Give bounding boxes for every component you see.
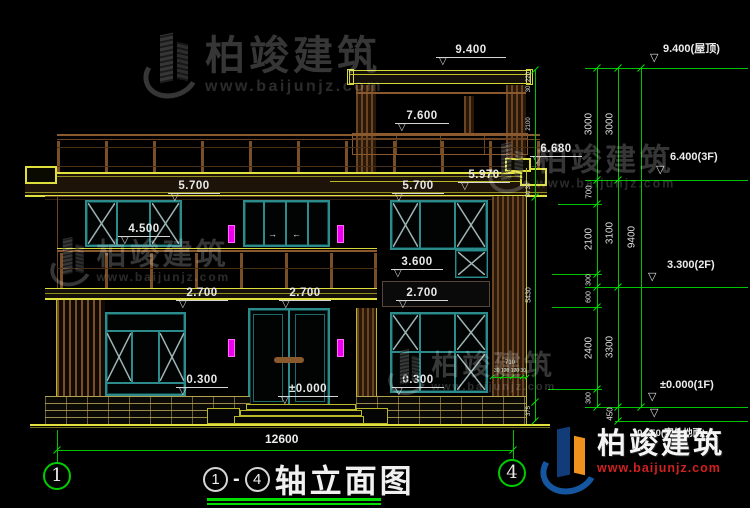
terrace-rail-panel-line: [57, 147, 540, 148]
penthouse-beam: [356, 92, 526, 94]
level-mark: 2.700 ▽: [396, 287, 448, 301]
dim-value: 375: [526, 406, 532, 416]
dim-value: 600: [586, 291, 593, 303]
slide-direction-arrow: ←: [292, 230, 301, 239]
window-rail: [107, 382, 184, 384]
wall-lamp: [337, 339, 344, 357]
level-mark: 2.700 ▽: [279, 287, 331, 301]
dim-chain-line-c: [641, 68, 642, 407]
slider-mullion: [285, 202, 287, 245]
level-mark: 4.500 ▽: [118, 223, 170, 237]
title-underline: [207, 498, 381, 501]
right-level-label: 9.400(屋顶): [663, 40, 720, 56]
window-mullion: [131, 332, 133, 382]
level-triangle-icon: ▽: [394, 269, 402, 278]
penthouse-mullion: [464, 96, 474, 134]
ground-line: [30, 424, 550, 426]
cad-elevation-canvas: → ←: [0, 0, 750, 508]
level-mark: 9.400 ▽: [436, 44, 506, 58]
balcony-rail-post: [105, 253, 108, 288]
level-triangle-icon: ▽: [398, 123, 406, 132]
level-triangle-icon: ▽: [648, 392, 656, 402]
footer-brand: 柏竣建筑: [597, 428, 725, 461]
wall-strip: [356, 308, 377, 408]
dim-value: 300: [586, 392, 593, 404]
dim-value: 5430: [526, 287, 533, 303]
balcony-rail-post: [195, 253, 198, 288]
roof-fascia-line: [25, 192, 547, 193]
terrace-rail-second: [57, 139, 540, 140]
dim-value: 700: [585, 185, 594, 198]
slider-mullion: [307, 202, 309, 245]
penthouse-rail-post: [396, 134, 397, 154]
level-triangle-icon: ▽: [650, 408, 658, 418]
dim-value: 9400: [627, 226, 638, 248]
title-text: 轴立面图: [275, 456, 415, 502]
terrace-rail-post: [441, 141, 444, 172]
wall-lamp: [337, 225, 344, 243]
level-line-roof: [585, 68, 748, 69]
slide-direction-arrow: →: [268, 230, 277, 239]
axis-number: 4: [506, 462, 517, 483]
window-mullion: [419, 202, 421, 248]
window-mullion: [454, 202, 456, 248]
dim-value: 30: [526, 183, 532, 190]
window-rail: [392, 351, 486, 353]
axis-bubble-1: 1: [43, 462, 71, 490]
axis-extension-line: [513, 430, 514, 459]
level-triangle-icon: ▽: [281, 396, 289, 405]
dim-value: 2100: [526, 117, 532, 130]
level-mark: 5.970 ▽: [458, 169, 510, 183]
level-triangle-icon: ▽: [648, 272, 656, 282]
level-triangle-icon: ▽: [395, 387, 403, 396]
level-mark: 7.600 ▽: [395, 110, 449, 124]
balcony-rail-top: [57, 250, 377, 252]
level-triangle-icon: ▽: [179, 300, 187, 309]
baijun-logo-icon: [143, 34, 197, 98]
title-axis-bubble: 4: [245, 467, 270, 492]
level-triangle-icon: ▽: [656, 165, 664, 175]
title-axis-bubble: 1: [203, 467, 228, 492]
balcony-rail-post: [240, 253, 243, 288]
level-triangle-icon: ▽: [399, 300, 407, 309]
dim-value: 30 120 120 30: [494, 368, 526, 374]
dim-value: 3300: [605, 336, 616, 358]
dim-value: 3000: [584, 113, 595, 135]
dim-value: 710: [505, 360, 515, 366]
axis-extension-line: [57, 430, 58, 462]
dim-value: 2100: [584, 228, 595, 250]
door-handle: [274, 357, 304, 363]
overall-dim-line: [57, 450, 513, 451]
level-mark: 0.300 ▽: [176, 374, 228, 388]
window-mullion: [454, 314, 456, 391]
dim-value: 2400: [584, 337, 595, 359]
wall-lamp: [228, 225, 235, 243]
overall-width-label: 12600: [265, 432, 298, 446]
balcony-rail-post: [330, 253, 333, 288]
dim-chain-line-edge: [535, 70, 536, 421]
timber-slat-wall: [57, 300, 105, 396]
dim-value: 50: [526, 191, 532, 198]
title-dash: -: [233, 468, 240, 491]
axis-bubble-4: 4: [498, 459, 526, 487]
title-underline2: [207, 503, 381, 505]
dim-chain-line-a: [597, 68, 598, 407]
dim-chain-line-b: [618, 68, 619, 421]
level-mark: 5.700 ▽: [168, 180, 220, 194]
terrace-rail-post: [345, 141, 348, 172]
dim-value: 3000: [605, 113, 616, 135]
balcony-rail-post: [374, 253, 377, 288]
drawing-title: 1 - 4 轴立面图: [203, 458, 415, 500]
terrace-rail-post: [153, 141, 156, 172]
level-mark: ±0.000 ▽: [278, 383, 338, 397]
right-level-label: 6.400(3F): [670, 151, 718, 163]
roof-eave-tip-left: [25, 166, 57, 184]
penthouse-roof-slab: [349, 70, 531, 84]
balcony-rail-post: [150, 253, 153, 288]
entrance-step: [234, 416, 364, 424]
penthouse-rail-post: [484, 134, 485, 154]
window-x-pane: [458, 252, 485, 275]
watermark: 柏竣建筑 www.baijunjz.com: [143, 34, 383, 98]
terrace-rail-post: [393, 141, 396, 172]
terrace-rail-post: [297, 141, 300, 172]
level-triangle-icon: ▽: [395, 193, 403, 202]
pier-right: [492, 196, 526, 424]
terrace-rail-post: [201, 141, 204, 172]
wall-top-line: [45, 196, 526, 197]
level-mark: 0.300 ▽: [392, 374, 444, 388]
footer-logo: 柏竣建筑 www.baijunjz.com: [540, 428, 725, 494]
window-rail: [107, 330, 184, 332]
terrace-rail-panel-line: [57, 166, 540, 167]
window-x-pane: [393, 315, 418, 350]
terrace-rail-top: [57, 134, 540, 136]
level-line-2f: [585, 287, 748, 288]
balcony-rail-post: [285, 253, 288, 288]
penthouse-roof-molding: [350, 74, 530, 75]
dim-value: 300: [586, 274, 593, 286]
level-triangle-icon: ▽: [171, 193, 179, 202]
right-level-label: ±0.000(1F): [660, 379, 714, 391]
window-x-pane: [457, 354, 485, 390]
level-triangle-icon: ▽: [650, 53, 658, 63]
penthouse-column-left: [356, 85, 376, 172]
wall-lamp: [228, 339, 235, 357]
level-triangle-icon: ▽: [282, 300, 290, 309]
terrace-rail-post: [57, 141, 60, 172]
dim-value: 3100: [605, 222, 616, 244]
level-triangle-icon: ▽: [461, 182, 469, 191]
dim-value: 30: [526, 86, 532, 93]
baijun-logo-icon: [540, 428, 590, 494]
right-level-label: 3.300(2F): [667, 259, 715, 271]
level-mark: 2.700 ▽: [176, 287, 228, 301]
level-line-3f: [585, 180, 748, 181]
level-line-grade: [615, 421, 748, 422]
terrace-rail-post: [105, 141, 108, 172]
level-triangle-icon: ▽: [179, 387, 187, 396]
window-x-pane: [393, 203, 418, 247]
level-mark: 6.680 ▽: [530, 143, 582, 157]
level-mark: 3.600 ▽: [391, 256, 443, 270]
window-x-pane: [88, 203, 115, 244]
window-x-pane: [107, 333, 131, 381]
slider-mullion: [263, 202, 265, 245]
balcony-rail-topline: [57, 248, 377, 249]
ground-line2: [30, 427, 550, 428]
footer-url: www.baijunjz.com: [597, 461, 725, 475]
balcony-rail-midline: [57, 268, 377, 269]
level-triangle-icon: ▽: [121, 236, 129, 245]
window-x-pane: [457, 315, 485, 350]
slat-wall-edge: [56, 300, 57, 396]
level-mark: 5.700 ▽: [392, 180, 444, 194]
window-x-pane: [457, 203, 485, 247]
axis-number: 1: [51, 465, 62, 486]
watermark-url: www.baijunjz.com: [97, 271, 231, 285]
level-triangle-icon: ▽: [439, 57, 447, 66]
penthouse-roof-endcap-left: [347, 69, 354, 85]
terrace-rail-post: [489, 141, 492, 172]
balcony-rail-post: [60, 253, 63, 288]
terrace-rail-post: [249, 141, 252, 172]
